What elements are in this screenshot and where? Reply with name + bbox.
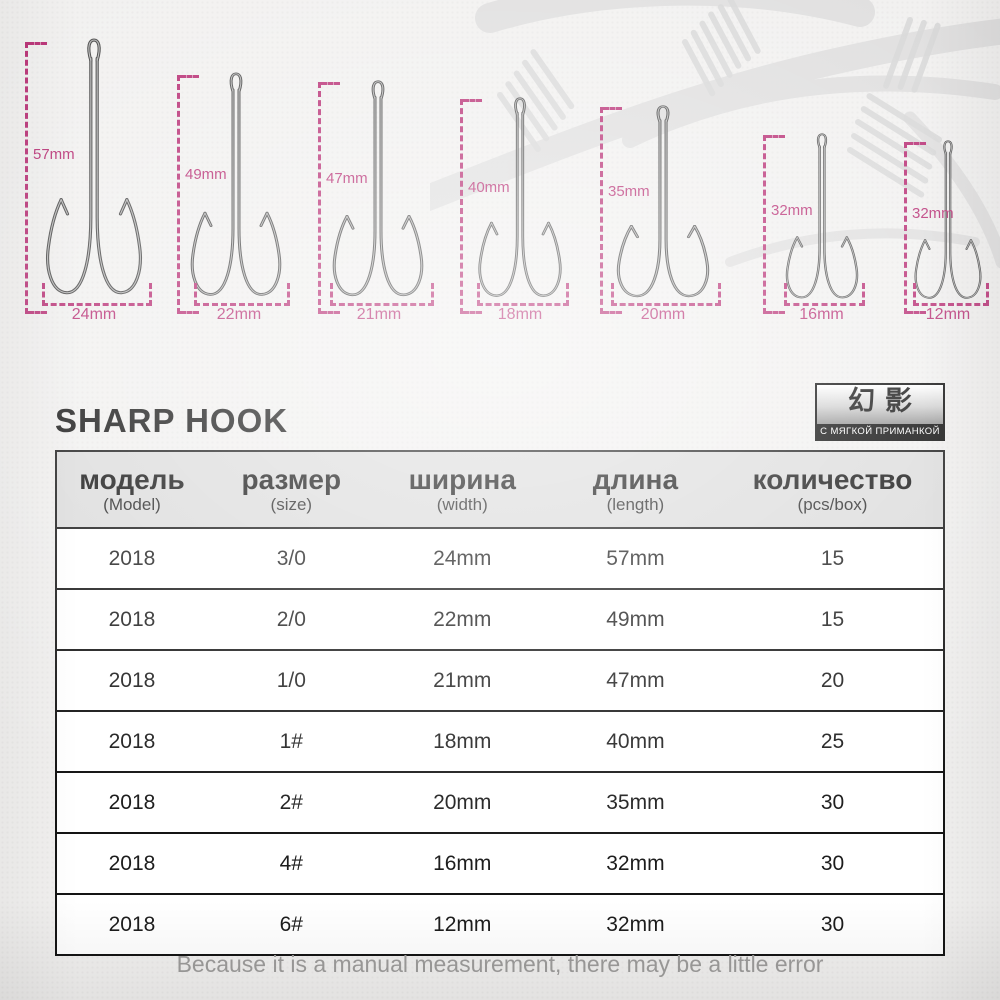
spec-cell: 2018 [56,528,207,589]
spec-cell: 2018 [56,894,207,955]
table-row: 20181/021mm47mm20 [56,650,944,711]
width-label: 20mm [613,306,713,324]
length-label: 32mm [912,205,954,222]
table-row: 20182/022mm49mm15 [56,589,944,650]
length-bracket [318,82,343,314]
brand-logo: 幻影 С МЯГКОЙ ПРИМАНКОЙ [815,383,945,441]
table-row: 20186#12mm32mm30 [56,894,944,955]
length-label: 32mm [771,202,813,219]
spec-cell: 12mm [376,894,549,955]
width-label: 21mm [329,306,429,324]
spec-cell: 32mm [549,894,722,955]
spec-cell: 30 [722,772,944,833]
length-label: 35mm [608,183,650,200]
column-header-sublabel: (width) [376,495,549,515]
width-label: 18mm [470,306,570,324]
width-bracket [784,283,865,306]
column-header-sublabel: (pcs/box) [722,495,943,515]
table-row: 20184#16mm32mm30 [56,833,944,894]
column-header-sublabel: (size) [207,495,376,515]
width-label: 22mm [189,306,289,324]
spec-cell: 22mm [376,589,549,650]
spec-cell: 40mm [549,711,722,772]
spec-cell: 49mm [549,589,722,650]
disclaimer-text: Because it is a manual measurement, ther… [0,951,1000,978]
column-header-sublabel: (Model) [57,495,207,515]
length-bracket [177,75,202,314]
brand-logo-subtitle: С МЯГКОЙ ПРИМАНКОЙ [817,424,943,439]
spec-table-header-row: модель (Model) размер (size) ширина (wid… [56,451,944,528]
spec-cell: 3/0 [207,528,376,589]
length-label: 47mm [326,170,368,187]
spec-cell: 57mm [549,528,722,589]
hooks-diagram: 57mm 24mm 49mm 22mm [0,0,1000,370]
spec-cell: 18mm [376,711,549,772]
width-bracket [330,283,434,306]
spec-cell: 2018 [56,650,207,711]
column-header-label: модель [57,465,207,495]
column-header: ширина (width) [376,451,549,528]
spec-cell: 30 [722,833,944,894]
spec-cell: 47mm [549,650,722,711]
length-bracket [460,99,485,314]
spec-cell: 2018 [56,772,207,833]
column-header-sublabel: (length) [549,495,722,515]
column-header-label: длина [549,465,722,495]
spec-cell: 2018 [56,589,207,650]
spec-cell: 6# [207,894,376,955]
column-header: длина (length) [549,451,722,528]
length-bracket [25,42,50,314]
column-header-label: размер [207,465,376,495]
double-hook-illustration [41,38,147,306]
column-header-label: количество [722,465,943,495]
double-hook-illustration [612,105,714,306]
table-row: 20182#20mm35mm30 [56,772,944,833]
column-header: количество (pcs/box) [722,451,944,528]
length-label: 57mm [33,146,75,163]
length-label: 49mm [185,166,227,183]
spec-cell: 1/0 [207,650,376,711]
double-hook-illustration [328,80,428,306]
spec-cell: 4# [207,833,376,894]
spec-cell: 2018 [56,833,207,894]
spec-cell: 2/0 [207,589,376,650]
width-bracket [913,283,989,306]
table-row: 20183/024mm57mm15 [56,528,944,589]
spec-cell: 2018 [56,711,207,772]
width-bracket [194,283,290,306]
width-bracket [42,283,152,306]
width-label: 12mm [898,306,998,324]
brand-logo-chinese: 幻影 [817,385,943,424]
spec-cell: 15 [722,589,944,650]
width-label: 16mm [772,306,872,324]
spec-cell: 2# [207,772,376,833]
spec-cell: 16mm [376,833,549,894]
spec-cell: 24mm [376,528,549,589]
spec-cell: 1# [207,711,376,772]
spec-cell: 21mm [376,650,549,711]
spec-cell: 15 [722,528,944,589]
spec-cell: 32mm [549,833,722,894]
column-header: размер (size) [207,451,376,528]
width-label: 24mm [44,306,144,324]
width-bracket [477,283,569,306]
double-hook-illustration [782,133,862,306]
page-title: SHARP HOOK [55,402,288,440]
length-label: 40mm [468,179,510,196]
width-bracket [611,283,721,306]
spec-cell: 20mm [376,772,549,833]
spec-cell: 30 [722,894,944,955]
column-header: модель (Model) [56,451,207,528]
spec-cell: 35mm [549,772,722,833]
spec-cell: 25 [722,711,944,772]
spec-table: модель (Model) размер (size) ширина (wid… [55,450,945,956]
double-hook-illustration [474,97,566,306]
spec-cell: 20 [722,650,944,711]
column-header-label: ширина [376,465,549,495]
table-row: 20181#18mm40mm25 [56,711,944,772]
product-sheet: 57mm 24mm 49mm 22mm [0,0,1000,1000]
